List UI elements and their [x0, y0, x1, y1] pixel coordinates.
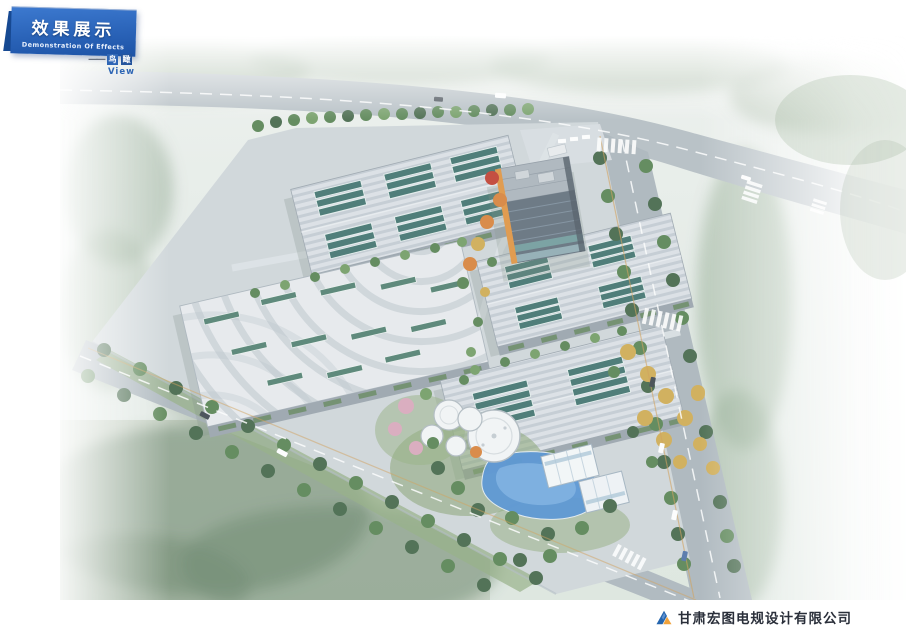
- view-tag-char-2: 瞰: [121, 54, 132, 65]
- slide-subtitle: Demonstration Of Effects: [22, 40, 125, 51]
- company-logo-icon: [655, 609, 673, 626]
- view-caption: View: [88, 67, 135, 77]
- vignette: [60, 36, 906, 600]
- view-label: —— 鸟 瞰 View: [88, 54, 135, 77]
- section-title-banner: 效果展示 Demonstration Of Effects: [6, 8, 136, 55]
- view-label-row: —— 鸟 瞰: [88, 54, 135, 65]
- footer: 甘肃宏图电规设计有限公司: [655, 607, 852, 627]
- presentation-slide: 效果展示 Demonstration Of Effects —— 鸟 瞰 Vie…: [0, 0, 906, 640]
- company-name: 甘肃宏图电规设计有限公司: [678, 607, 852, 627]
- dash-line: ——: [88, 54, 104, 65]
- banner-ribbon: 效果展示 Demonstration Of Effects: [10, 6, 136, 56]
- aerial-rendering-svg: [60, 36, 906, 600]
- view-tag-char-1: 鸟: [107, 54, 118, 65]
- slide-title: 效果展示: [31, 13, 116, 40]
- aerial-rendering-image: [60, 36, 906, 600]
